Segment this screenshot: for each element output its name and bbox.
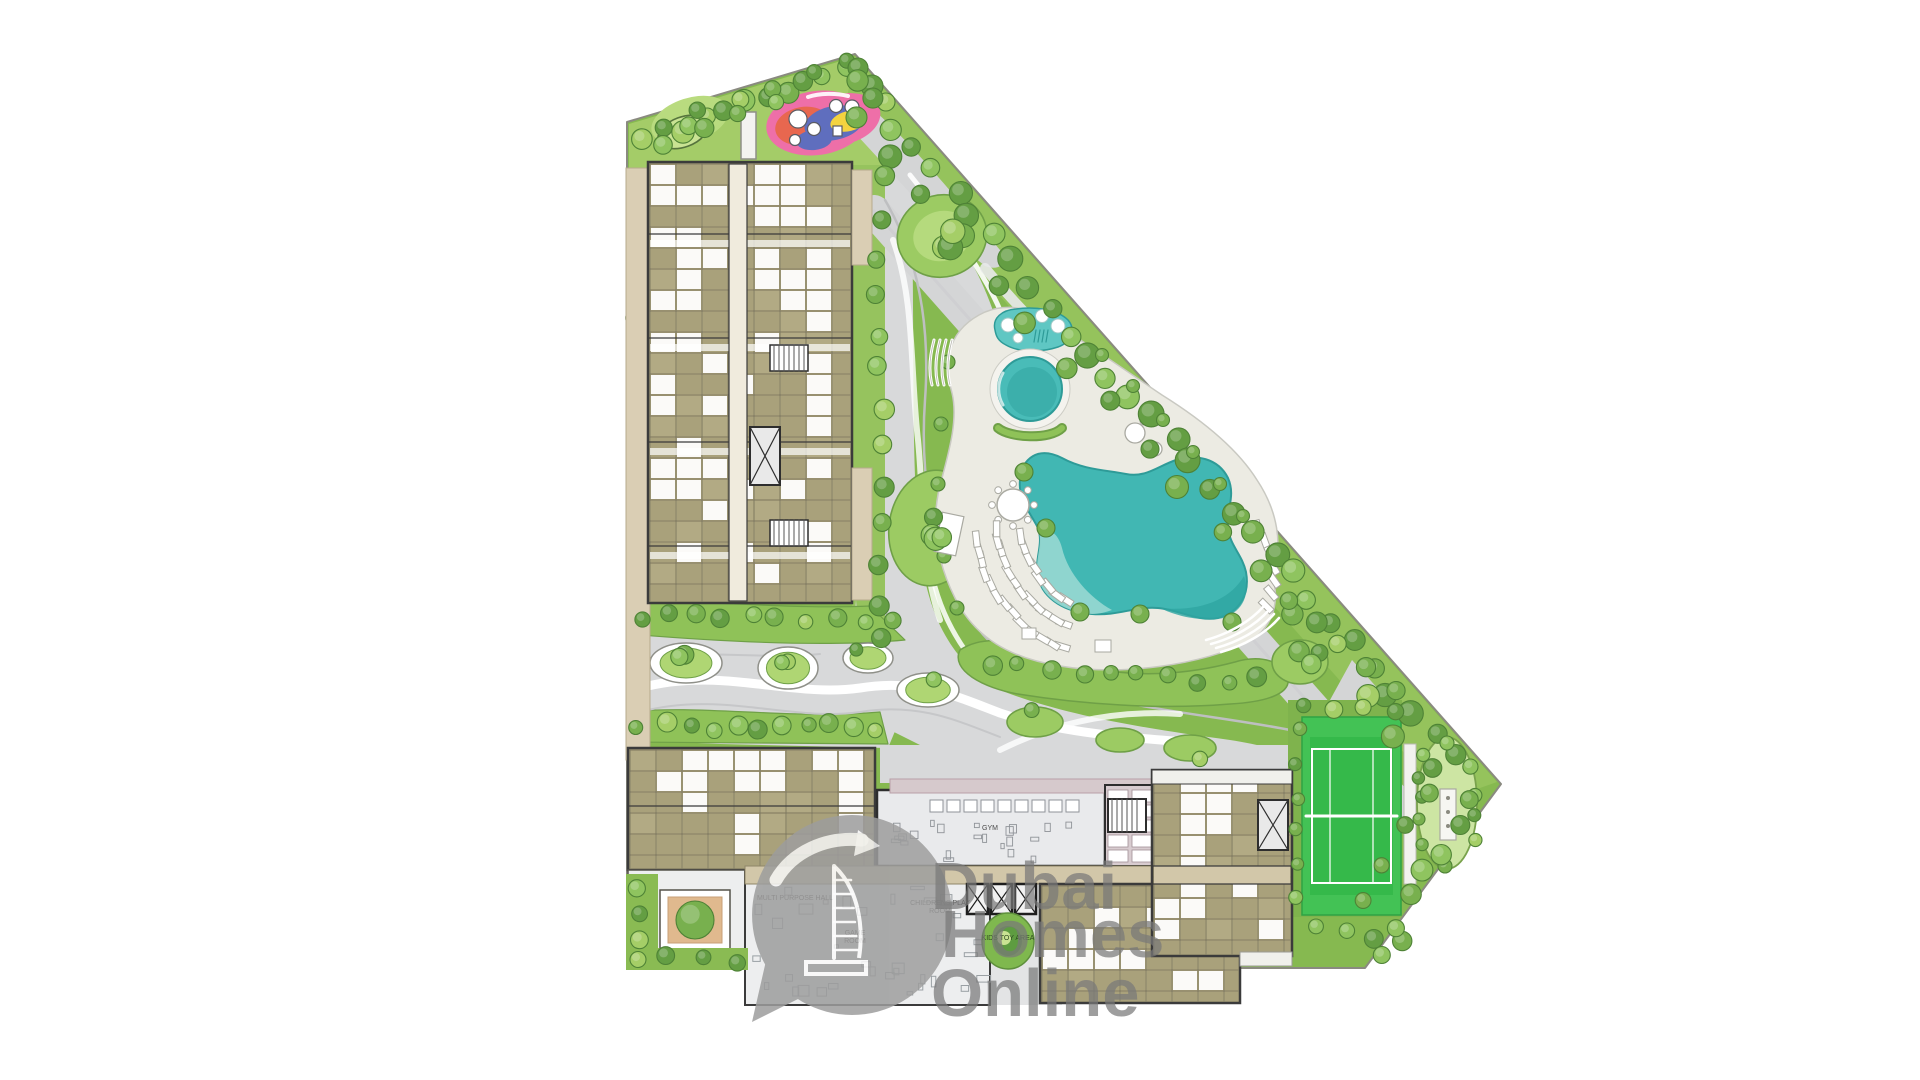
svg-text:GYM: GYM	[982, 825, 998, 832]
svg-text:Online: Online	[931, 956, 1139, 1031]
